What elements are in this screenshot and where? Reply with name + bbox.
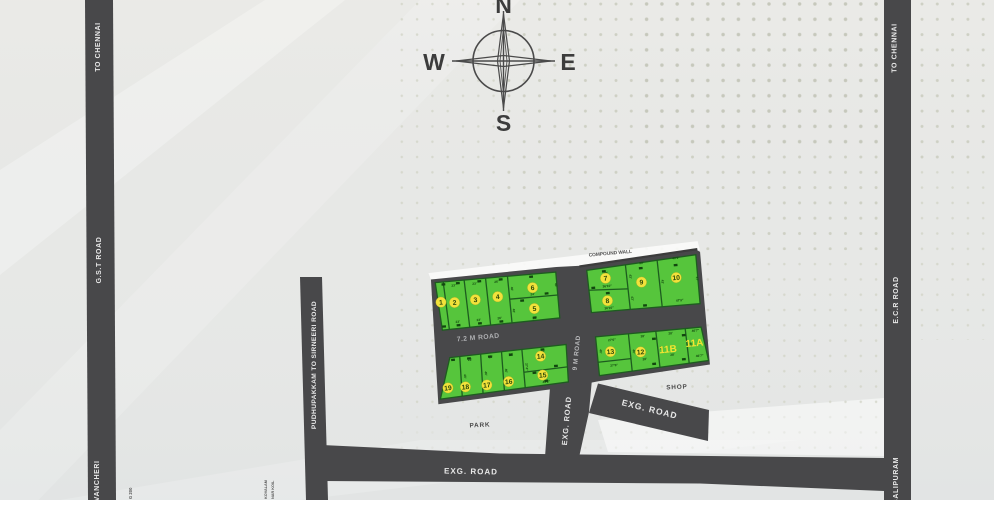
svg-text:28': 28'	[640, 334, 645, 338]
svg-text:46'7″: 46'7″	[696, 353, 704, 358]
svg-text:PUDHUPAKKAM TO SIRNEERI ROAD: PUDHUPAKKAM TO SIRNEERI ROAD	[311, 301, 318, 429]
svg-text:30': 30'	[639, 261, 644, 265]
svg-text:G.S.T ROAD: G.S.T ROAD	[96, 237, 103, 284]
svg-text:11B: 11B	[659, 344, 678, 357]
svg-text:43': 43'	[630, 296, 634, 301]
svg-text:16: 16	[505, 379, 513, 387]
svg-text:36'10″: 36'10″	[604, 306, 614, 311]
svg-text:43': 43'	[660, 279, 664, 284]
svg-text:40'9″: 40'9″	[672, 256, 680, 261]
svg-text:KOVALAM: KOVALAM	[264, 480, 268, 499]
svg-text:40': 40'	[484, 371, 488, 376]
svg-text:S: S	[496, 110, 511, 136]
svg-text:N: N	[495, 0, 512, 18]
svg-text:40': 40'	[463, 374, 467, 379]
svg-text:40': 40'	[598, 349, 602, 354]
svg-text:14: 14	[537, 353, 545, 361]
svg-text:23': 23'	[451, 283, 456, 287]
svg-text:13: 13	[606, 349, 614, 357]
svg-text:EXG. ROAD: EXG. ROAD	[444, 467, 498, 477]
svg-text:47': 47'	[695, 276, 699, 281]
svg-text:TO CHENNAI: TO CHENNAI	[95, 22, 102, 71]
svg-text:19: 19	[444, 385, 452, 393]
svg-text:TO MAHABALIPURAM: TO MAHABALIPURAM	[893, 457, 900, 500]
svg-text:23': 23'	[476, 318, 481, 322]
svg-text:40': 40'	[512, 309, 516, 314]
svg-text:E: E	[560, 49, 575, 75]
svg-text:40': 40'	[554, 283, 558, 288]
svg-text:28': 28'	[668, 331, 673, 335]
svg-text:PARK: PARK	[469, 421, 490, 429]
svg-text:E.C.R ROAD: E.C.R ROAD	[893, 276, 900, 323]
svg-text:NAR KOIL: NAR KOIL	[271, 480, 275, 499]
svg-text:TO CHENNAI: TO CHENNAI	[892, 23, 899, 72]
svg-text:24': 24'	[532, 316, 537, 320]
svg-text:11A: 11A	[685, 337, 704, 350]
svg-text:10: 10	[672, 275, 680, 283]
svg-text:26': 26'	[494, 280, 499, 284]
svg-text:SHOP: SHOP	[666, 383, 688, 391]
svg-text:36'10″: 36'10″	[602, 284, 612, 289]
svg-text:26': 26'	[497, 316, 502, 320]
svg-text:27'6″: 27'6″	[610, 363, 618, 368]
svg-text:15: 15	[539, 372, 547, 380]
svg-text:27'4″: 27'4″	[524, 363, 529, 371]
svg-text:23': 23'	[455, 320, 460, 324]
svg-text:12: 12	[637, 349, 645, 357]
svg-text:28': 28'	[642, 357, 647, 361]
svg-text:27'6″: 27'6″	[608, 338, 616, 343]
svg-text:22': 22'	[468, 358, 473, 362]
svg-text:G 200: G 200	[128, 487, 133, 499]
svg-text:47'9″: 47'9″	[676, 298, 684, 303]
svg-text:18: 18	[461, 384, 469, 392]
svg-text:W: W	[423, 49, 445, 75]
svg-text:17: 17	[483, 382, 491, 390]
svg-text:23': 23'	[472, 281, 477, 285]
svg-text:22': 22'	[489, 355, 494, 359]
svg-text:40': 40'	[504, 368, 508, 373]
svg-text:40': 40'	[510, 287, 514, 292]
svg-text:43': 43'	[628, 274, 632, 279]
svg-text:46'7″: 46'7″	[691, 328, 699, 333]
svg-text:22': 22'	[508, 352, 513, 356]
svg-text:TO GUDUVANCHERI: TO GUDUVANCHERI	[94, 460, 101, 500]
